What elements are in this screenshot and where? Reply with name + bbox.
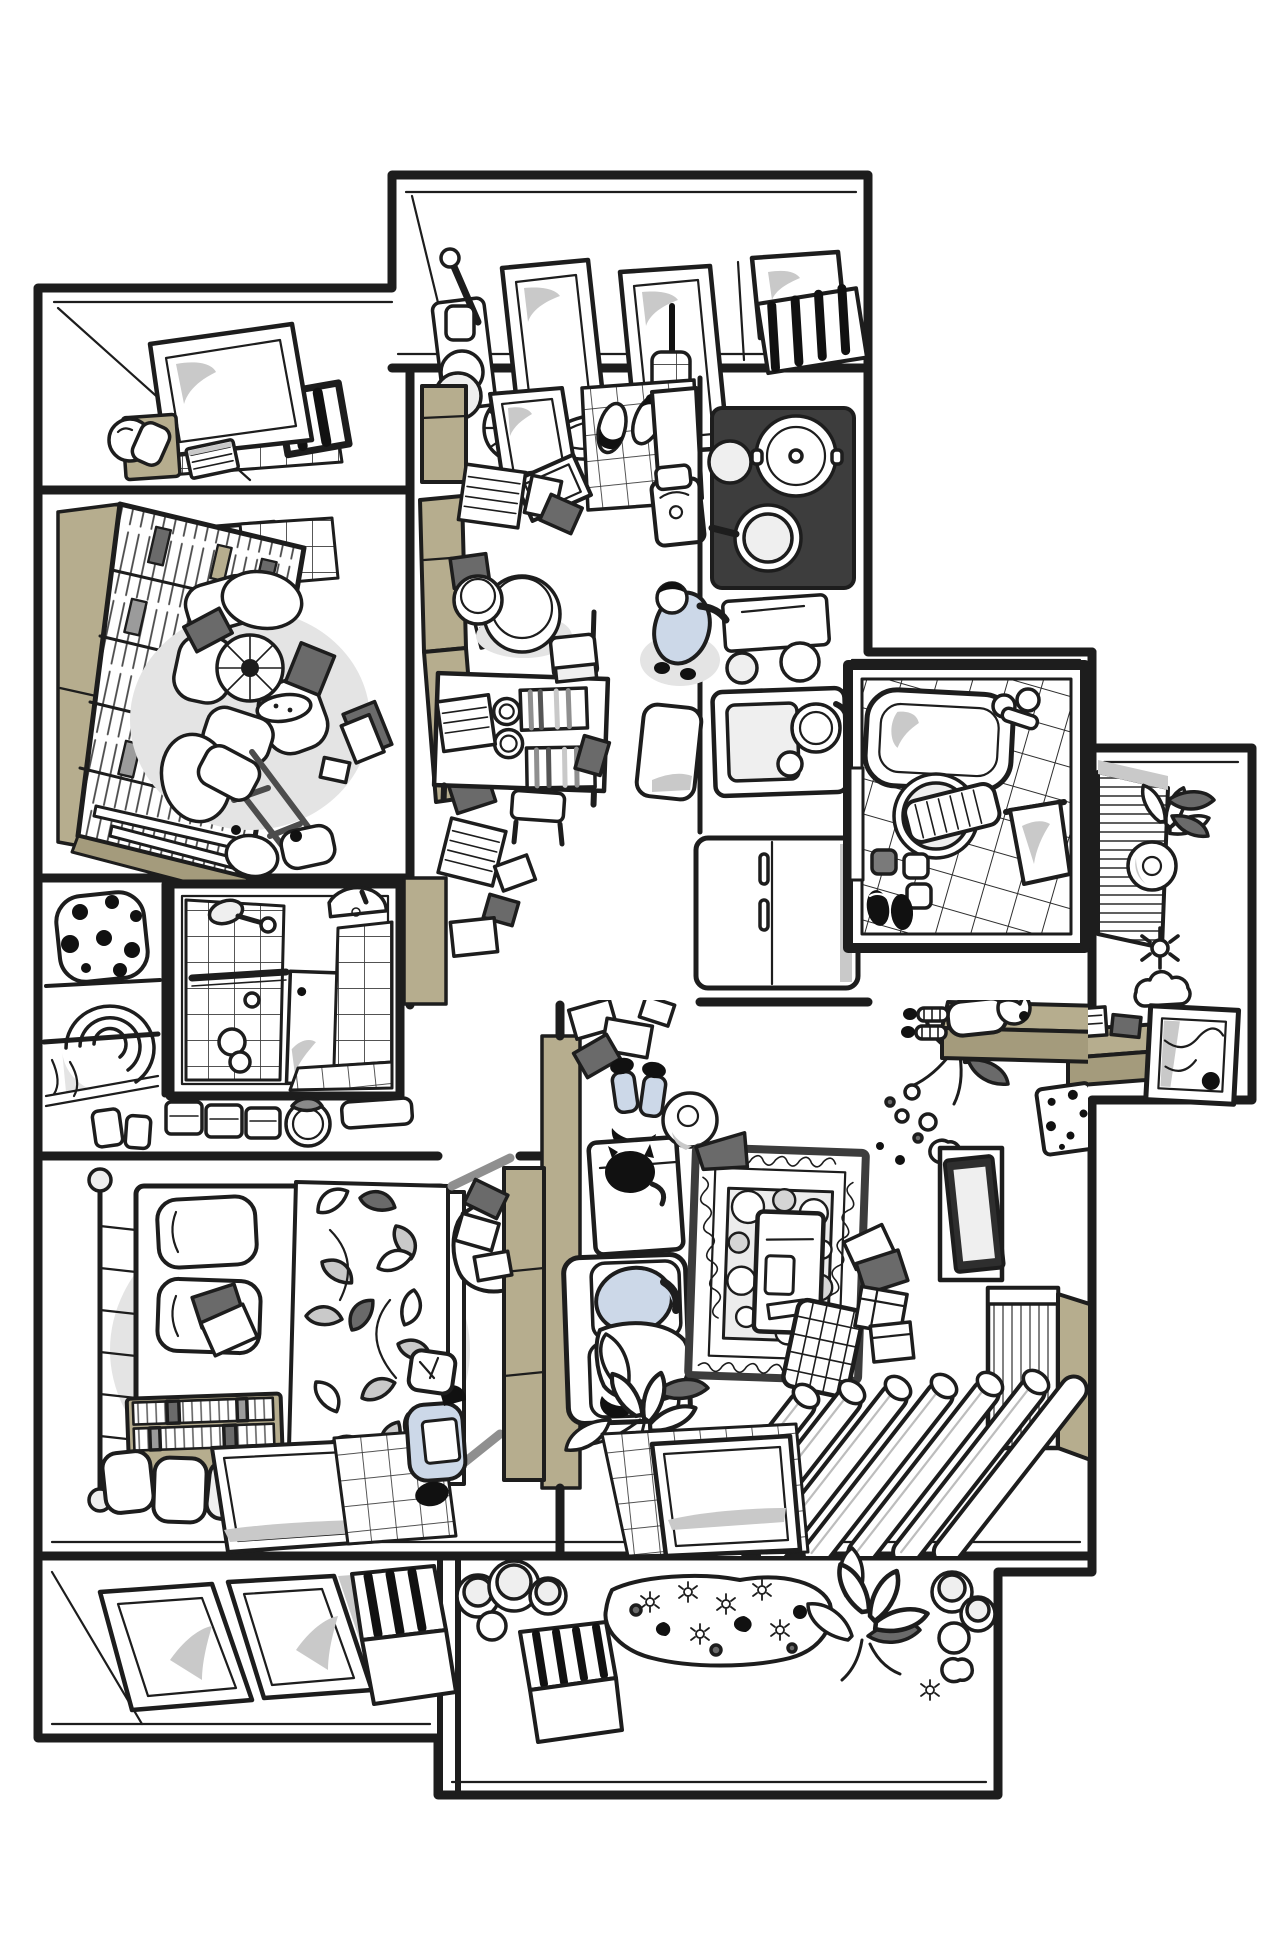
room-bathroom [848, 665, 1085, 948]
heart-frames [1141, 1261, 1179, 1357]
tray [341, 1098, 413, 1129]
pillow [156, 1195, 257, 1268]
tap-knob [245, 993, 259, 1007]
tile-wall-right [334, 922, 392, 1066]
small-pot [709, 441, 751, 483]
side-table [588, 1137, 684, 1255]
dining-table [433, 673, 611, 805]
tv [944, 1156, 1003, 1272]
door-strip [850, 768, 863, 880]
bowl-mirror [1128, 842, 1176, 890]
polka-cushion [1096, 1317, 1148, 1405]
white-flowers [942, 1659, 972, 1682]
small-frame [1099, 1251, 1145, 1290]
bucket-with-cloth [286, 1099, 330, 1147]
room-shower [170, 884, 400, 1096]
tile-floor [290, 1062, 392, 1090]
tan-wardrobe [422, 386, 466, 482]
placemat [520, 688, 587, 730]
flower-bed [605, 1576, 831, 1666]
drying-rack-2 [520, 1622, 622, 1742]
refrigerator [696, 838, 858, 988]
picture-frame [1146, 1006, 1239, 1104]
white-panel [652, 1436, 800, 1556]
striped-drawer [1101, 1403, 1152, 1463]
table-books [437, 695, 495, 752]
pillow-with-books [157, 1278, 261, 1356]
drawer-boxes [166, 1102, 280, 1138]
floor-plan-svg [0, 0, 1280, 1958]
sink [712, 688, 848, 797]
apartment-illustration [0, 0, 1280, 1958]
fan [217, 635, 283, 701]
polka-dot-beanbag [54, 890, 151, 985]
